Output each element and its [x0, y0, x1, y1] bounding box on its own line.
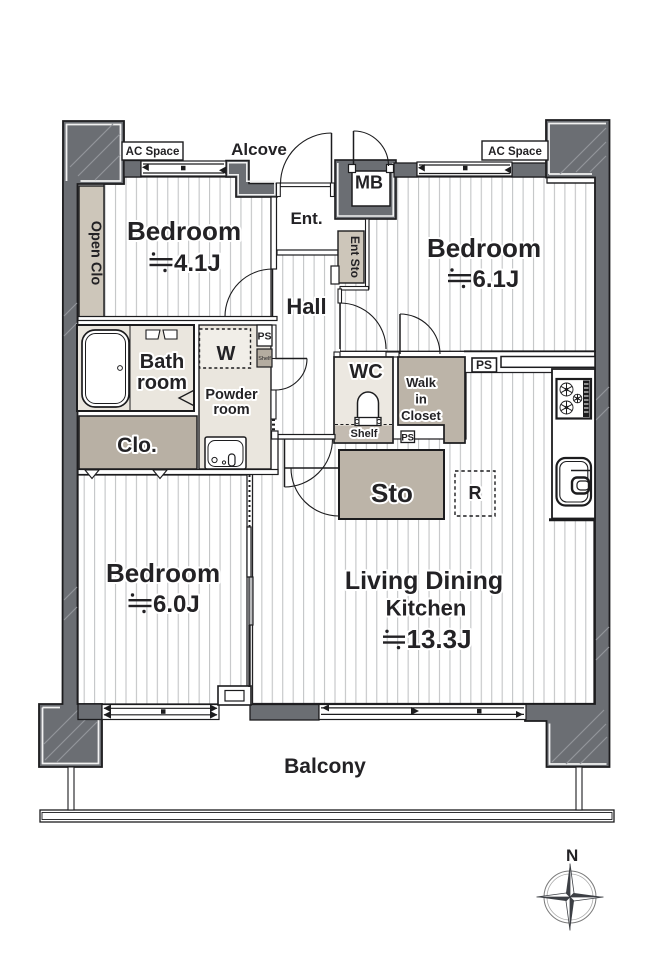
svg-text:Shelf: Shelf: [258, 356, 271, 362]
svg-text:13.3J: 13.3J: [407, 624, 472, 654]
svg-text:room: room: [137, 372, 187, 394]
svg-text:Bedroom: Bedroom: [127, 216, 241, 246]
svg-text:PS: PS: [476, 358, 492, 372]
svg-text:Hall: Hall: [286, 294, 326, 319]
svg-text:Powder: Powder: [205, 387, 258, 403]
svg-text:PS: PS: [257, 331, 271, 343]
svg-text:Kitchen: Kitchen: [386, 596, 467, 621]
svg-text:in: in: [415, 392, 427, 407]
svg-text:N: N: [566, 846, 578, 865]
svg-text:Living Dining: Living Dining: [345, 567, 503, 595]
svg-text:Balcony: Balcony: [284, 755, 366, 778]
svg-text:Walk: Walk: [406, 375, 437, 390]
svg-text:Ent.: Ent.: [290, 209, 322, 228]
svg-text:Sto: Sto: [371, 478, 413, 508]
svg-text:Bedroom: Bedroom: [427, 233, 541, 263]
svg-text:6.1J: 6.1J: [473, 266, 520, 293]
svg-text:Closet: Closet: [401, 408, 441, 423]
svg-text:MB: MB: [355, 173, 383, 193]
svg-text:Bath: Bath: [140, 351, 184, 373]
svg-text:W: W: [217, 343, 236, 365]
svg-text:6.0J: 6.0J: [153, 591, 200, 618]
svg-text:room: room: [213, 402, 249, 418]
svg-text:Clo.: Clo.: [117, 434, 157, 457]
svg-text:Open Clo: Open Clo: [88, 221, 104, 286]
svg-text:AC Space: AC Space: [488, 146, 542, 158]
svg-text:AC Space: AC Space: [126, 146, 180, 158]
svg-text:Alcove: Alcove: [231, 140, 287, 159]
svg-text:PS: PS: [401, 433, 414, 444]
svg-text:Ent Sto: Ent Sto: [348, 236, 362, 278]
svg-text:Shelf: Shelf: [351, 428, 378, 440]
svg-text:R: R: [469, 483, 482, 503]
svg-text:Bedroom: Bedroom: [106, 558, 220, 588]
svg-text:WC: WC: [349, 361, 382, 383]
svg-text:4.1J: 4.1J: [174, 250, 221, 277]
